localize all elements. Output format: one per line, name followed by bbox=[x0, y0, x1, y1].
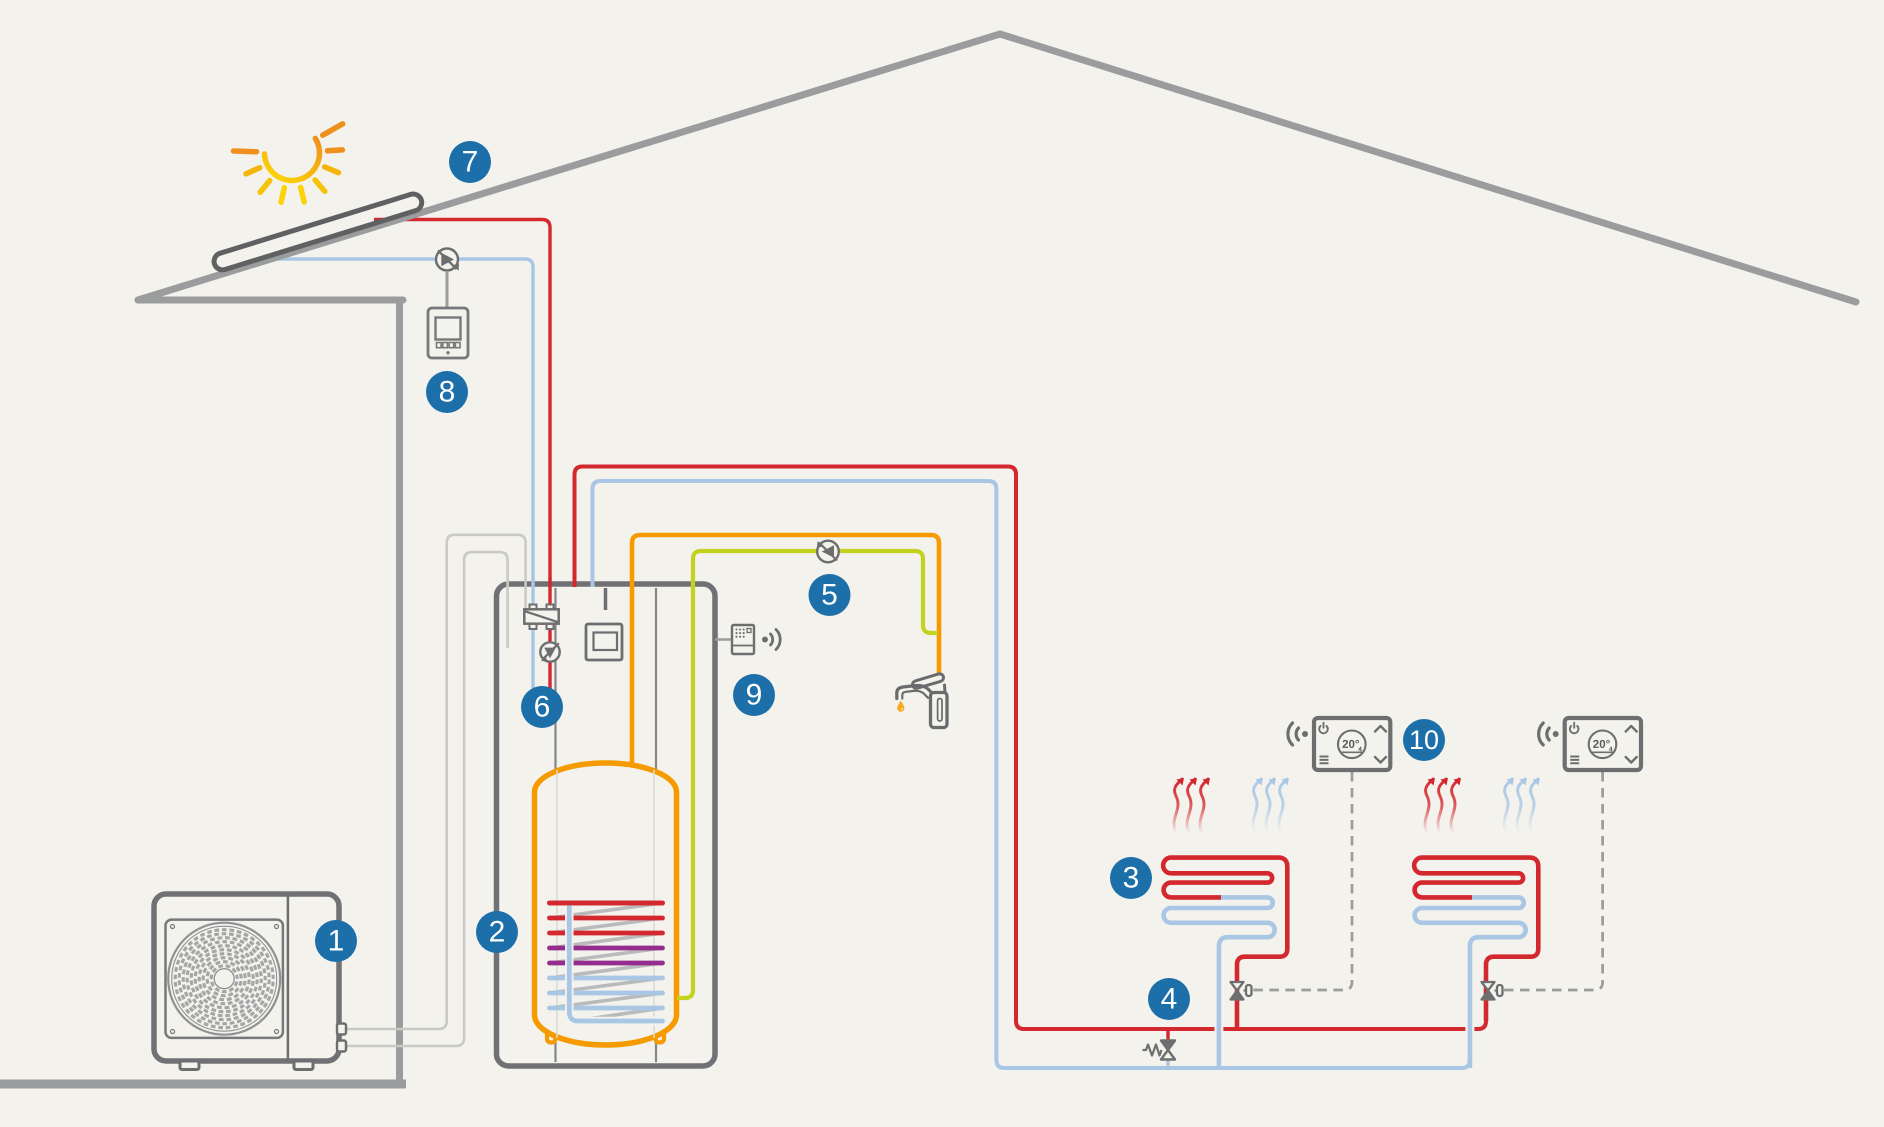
svg-text:1: 1 bbox=[328, 925, 345, 958]
svg-text:20°: 20° bbox=[1342, 739, 1360, 751]
svg-text:4: 4 bbox=[1609, 746, 1613, 753]
svg-text:4: 4 bbox=[1161, 983, 1178, 1016]
svg-text:3: 3 bbox=[1123, 862, 1140, 895]
svg-text:20°: 20° bbox=[1593, 739, 1611, 751]
svg-text:5: 5 bbox=[821, 579, 838, 612]
svg-text:10: 10 bbox=[1409, 725, 1439, 755]
svg-text:6: 6 bbox=[534, 691, 551, 724]
svg-text:2: 2 bbox=[489, 916, 506, 949]
svg-text:9: 9 bbox=[746, 679, 763, 712]
svg-text:8: 8 bbox=[439, 376, 456, 409]
svg-text:4: 4 bbox=[1358, 746, 1362, 753]
svg-text:7: 7 bbox=[462, 146, 479, 179]
